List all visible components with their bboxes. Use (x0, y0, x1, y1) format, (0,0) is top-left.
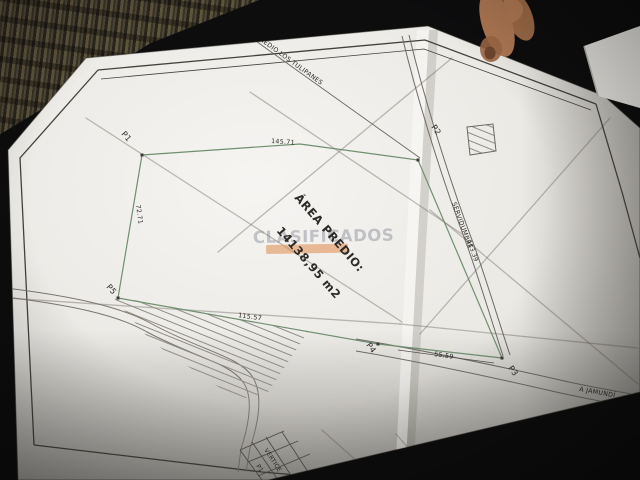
photo-scene: CLASIFICADOS PREDIO LOS TULIPANES ÁREA P… (0, 0, 640, 480)
hand (472, 0, 541, 62)
survey-plan-sheet: CLASIFICADOS PREDIO LOS TULIPANES ÁREA P… (0, 0, 640, 480)
structure-symbol (467, 124, 496, 155)
